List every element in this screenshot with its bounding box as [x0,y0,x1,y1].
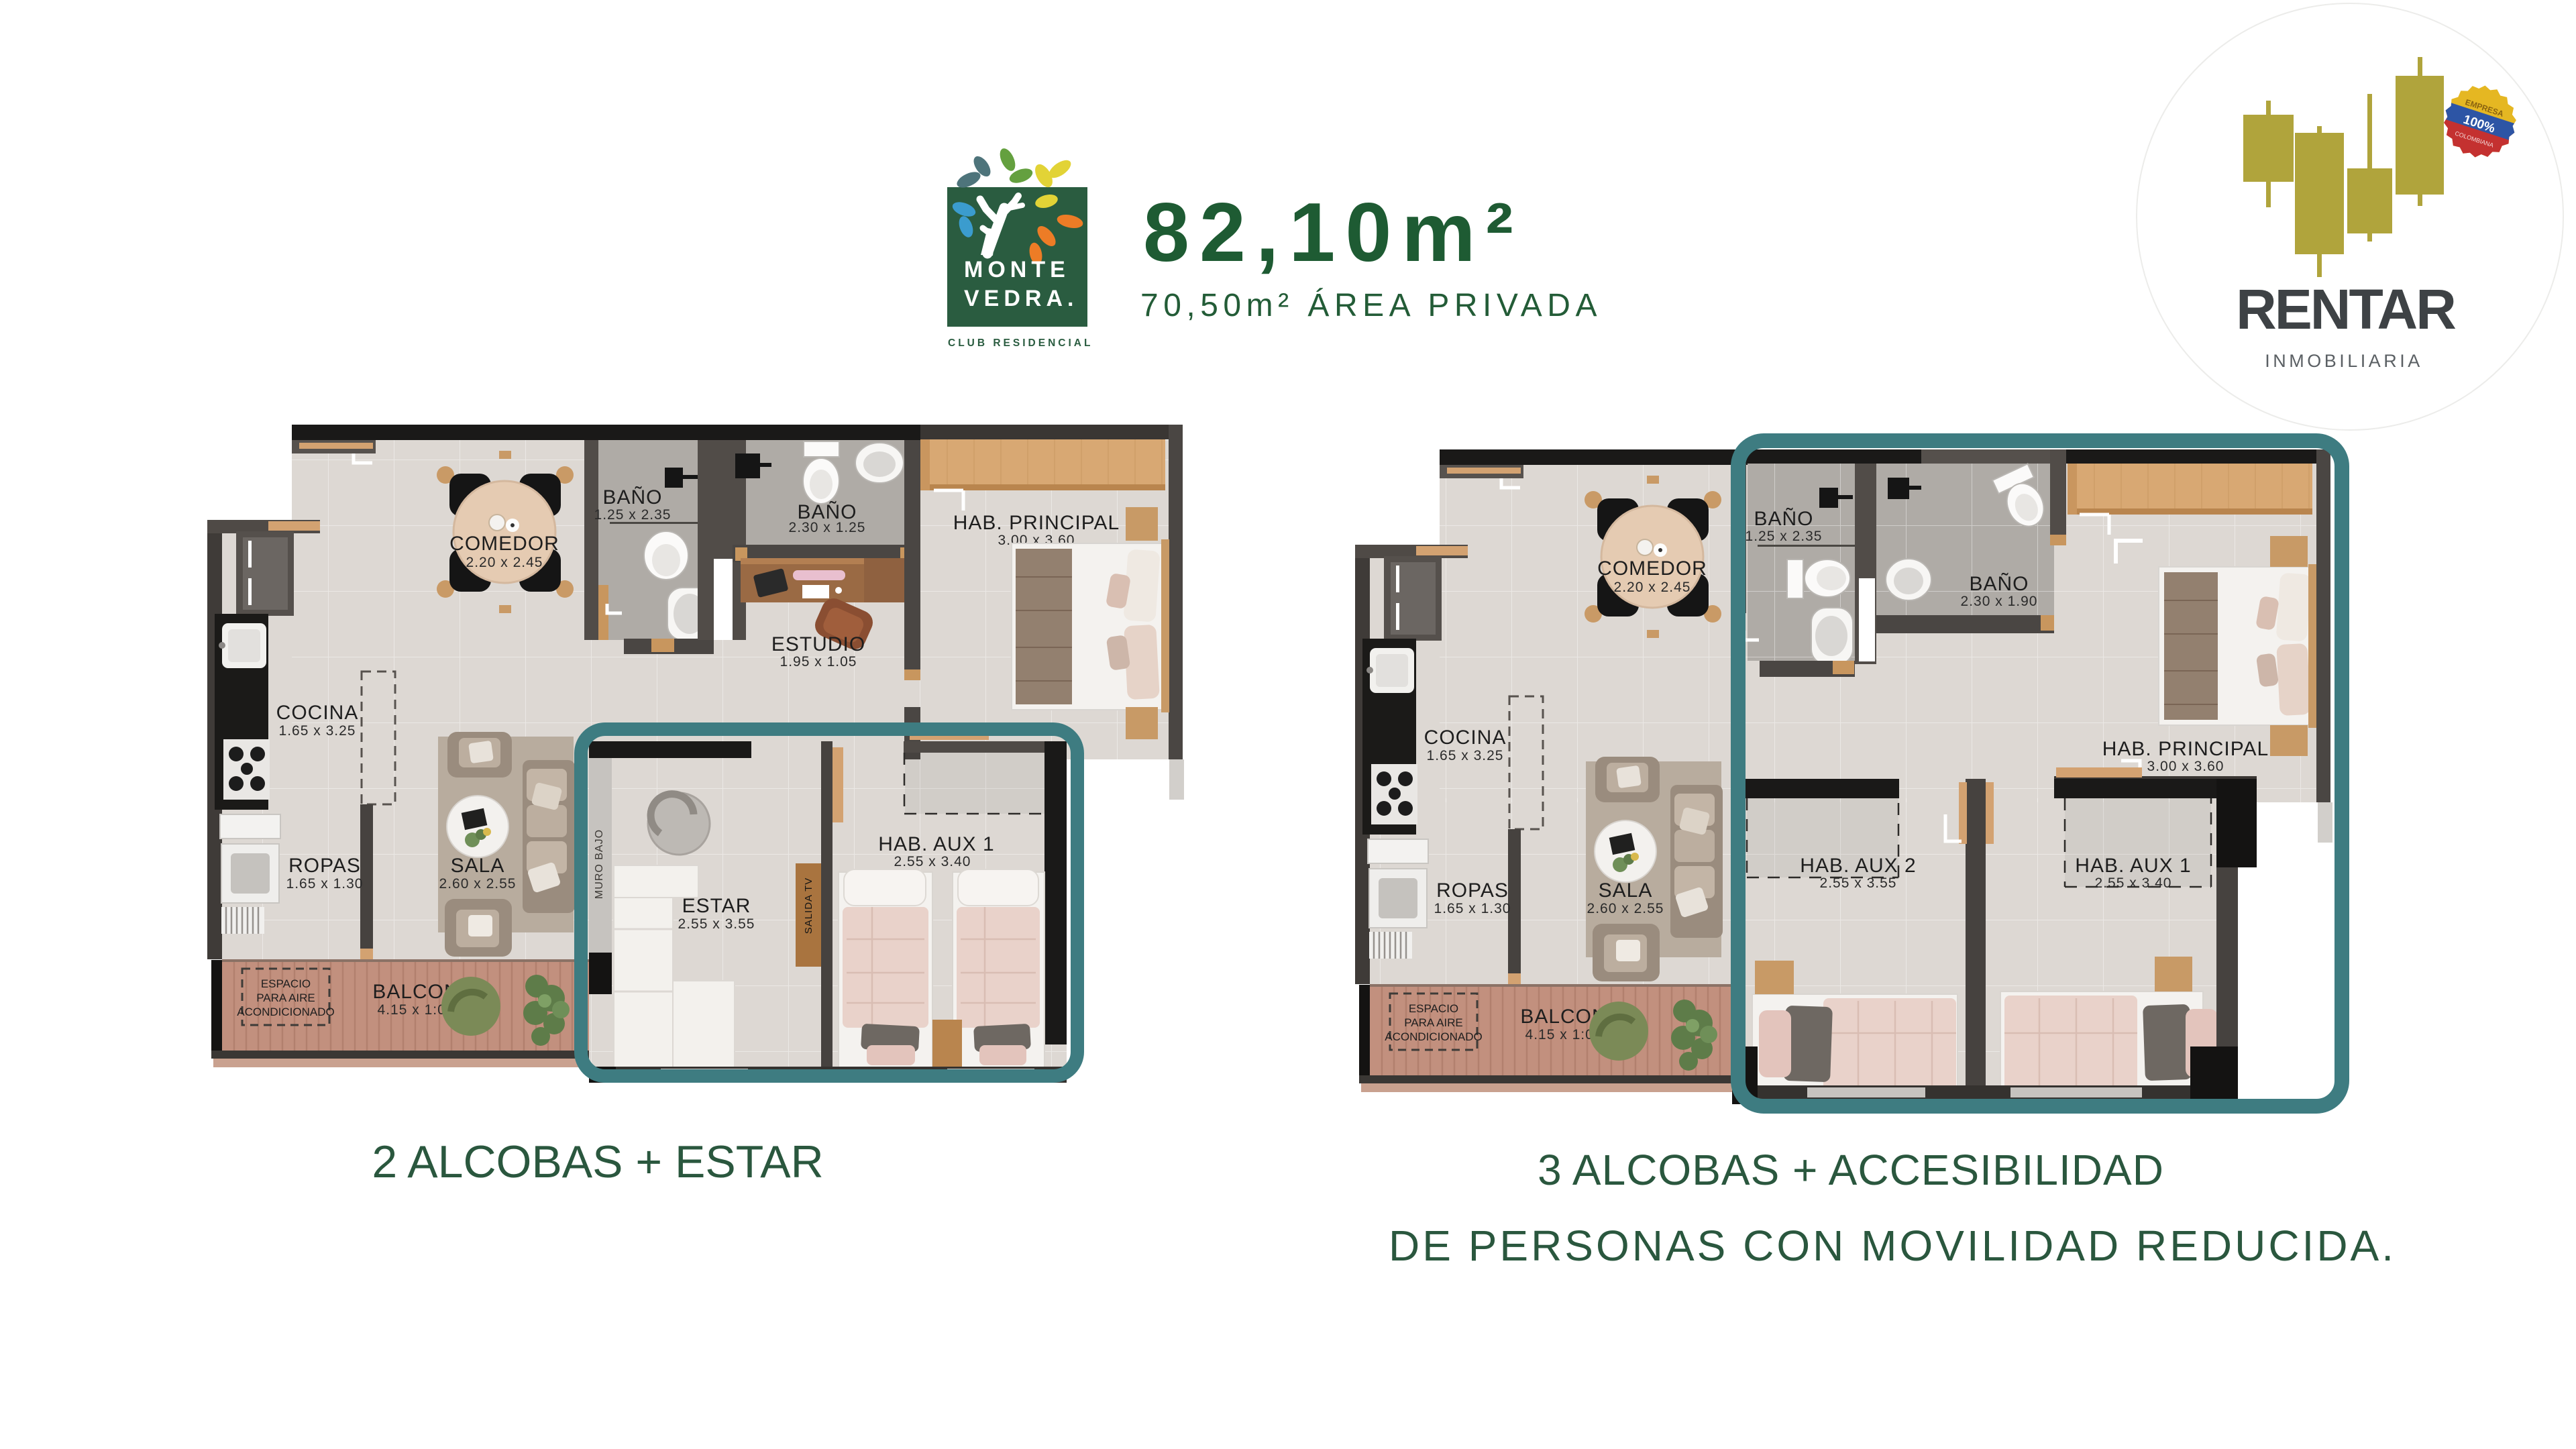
svg-text:CLUB RESIDENCIAL: CLUB RESIDENCIAL [948,337,1093,349]
svg-text:2.55 x 3.40: 2.55 x 3.40 [894,854,971,869]
svg-text:1.65 x 1.30: 1.65 x 1.30 [286,876,364,892]
svg-text:2.55 x 3.40: 2.55 x 3.40 [2095,875,2172,891]
svg-text:2.60 x 2.55: 2.60 x 2.55 [439,876,517,892]
svg-text:PARA AIRE: PARA AIRE [256,991,315,1004]
svg-text:COMEDOR: COMEDOR [449,533,559,555]
svg-text:2 ALCOBAS + ESTAR: 2 ALCOBAS + ESTAR [372,1136,823,1187]
svg-text:MURO BAJO: MURO BAJO [594,829,605,899]
svg-text:1.25 x 2.35: 1.25 x 2.35 [1746,529,1823,544]
svg-text:ACONDICIONADO: ACONDICIONADO [237,1006,334,1018]
svg-text:INMOBILIARIA: INMOBILIARIA [2265,351,2423,371]
svg-text:BAÑO: BAÑO [1969,572,2029,595]
svg-text:SALA: SALA [451,855,505,877]
svg-text:BAÑO: BAÑO [602,486,662,508]
svg-text:COCINA: COCINA [276,702,359,724]
svg-text:HAB. PRINCIPAL: HAB. PRINCIPAL [953,512,1120,534]
svg-text:HAB. AUX 2: HAB. AUX 2 [1800,855,1916,877]
svg-text:ESTAR: ESTAR [682,895,751,917]
svg-text:3.00 x 3.60: 3.00 x 3.60 [2147,759,2224,774]
svg-text:82,10m²: 82,10m² [1143,186,1523,279]
svg-text:SALIDA TV: SALIDA TV [803,877,814,934]
svg-text:BAÑO: BAÑO [1754,507,1813,530]
svg-text:1.25 x 2.35: 1.25 x 2.35 [594,507,672,523]
svg-text:ROPAS: ROPAS [288,855,361,877]
svg-text:2.55 x 3.55: 2.55 x 3.55 [678,916,755,932]
svg-text:VEDRA.: VEDRA. [964,286,1078,311]
svg-text:HAB. AUX 1: HAB. AUX 1 [2075,855,2191,877]
svg-text:2.20 x 2.45: 2.20 x 2.45 [466,555,543,570]
svg-text:1.95 x 1.05: 1.95 x 1.05 [780,654,857,669]
svg-text:ESTUDIO: ESTUDIO [771,633,865,655]
svg-text:MONTE: MONTE [964,257,1070,282]
svg-text:DE PERSONAS CON MOVILIDAD REDU: DE PERSONAS CON MOVILIDAD REDUCIDA. [1389,1222,2396,1270]
svg-text:70,50m² ÁREA PRIVADA: 70,50m² ÁREA PRIVADA [1140,288,1602,323]
svg-text:RENTAR: RENTAR [2236,278,2455,341]
svg-text:ESPACIO: ESPACIO [261,977,311,990]
svg-text:2.30 x 1.90: 2.30 x 1.90 [1961,594,2038,609]
svg-text:1.65 x 3.25: 1.65 x 3.25 [279,723,356,739]
svg-text:2.55 x 3.55: 2.55 x 3.55 [1820,875,1897,891]
svg-text:HAB. PRINCIPAL: HAB. PRINCIPAL [2102,738,2269,760]
svg-text:HAB. AUX 1: HAB. AUX 1 [878,833,994,855]
svg-text:2.30 x 1.25: 2.30 x 1.25 [789,520,866,535]
svg-text:3 ALCOBAS + ACCESIBILIDAD: 3 ALCOBAS + ACCESIBILIDAD [1538,1146,2164,1194]
